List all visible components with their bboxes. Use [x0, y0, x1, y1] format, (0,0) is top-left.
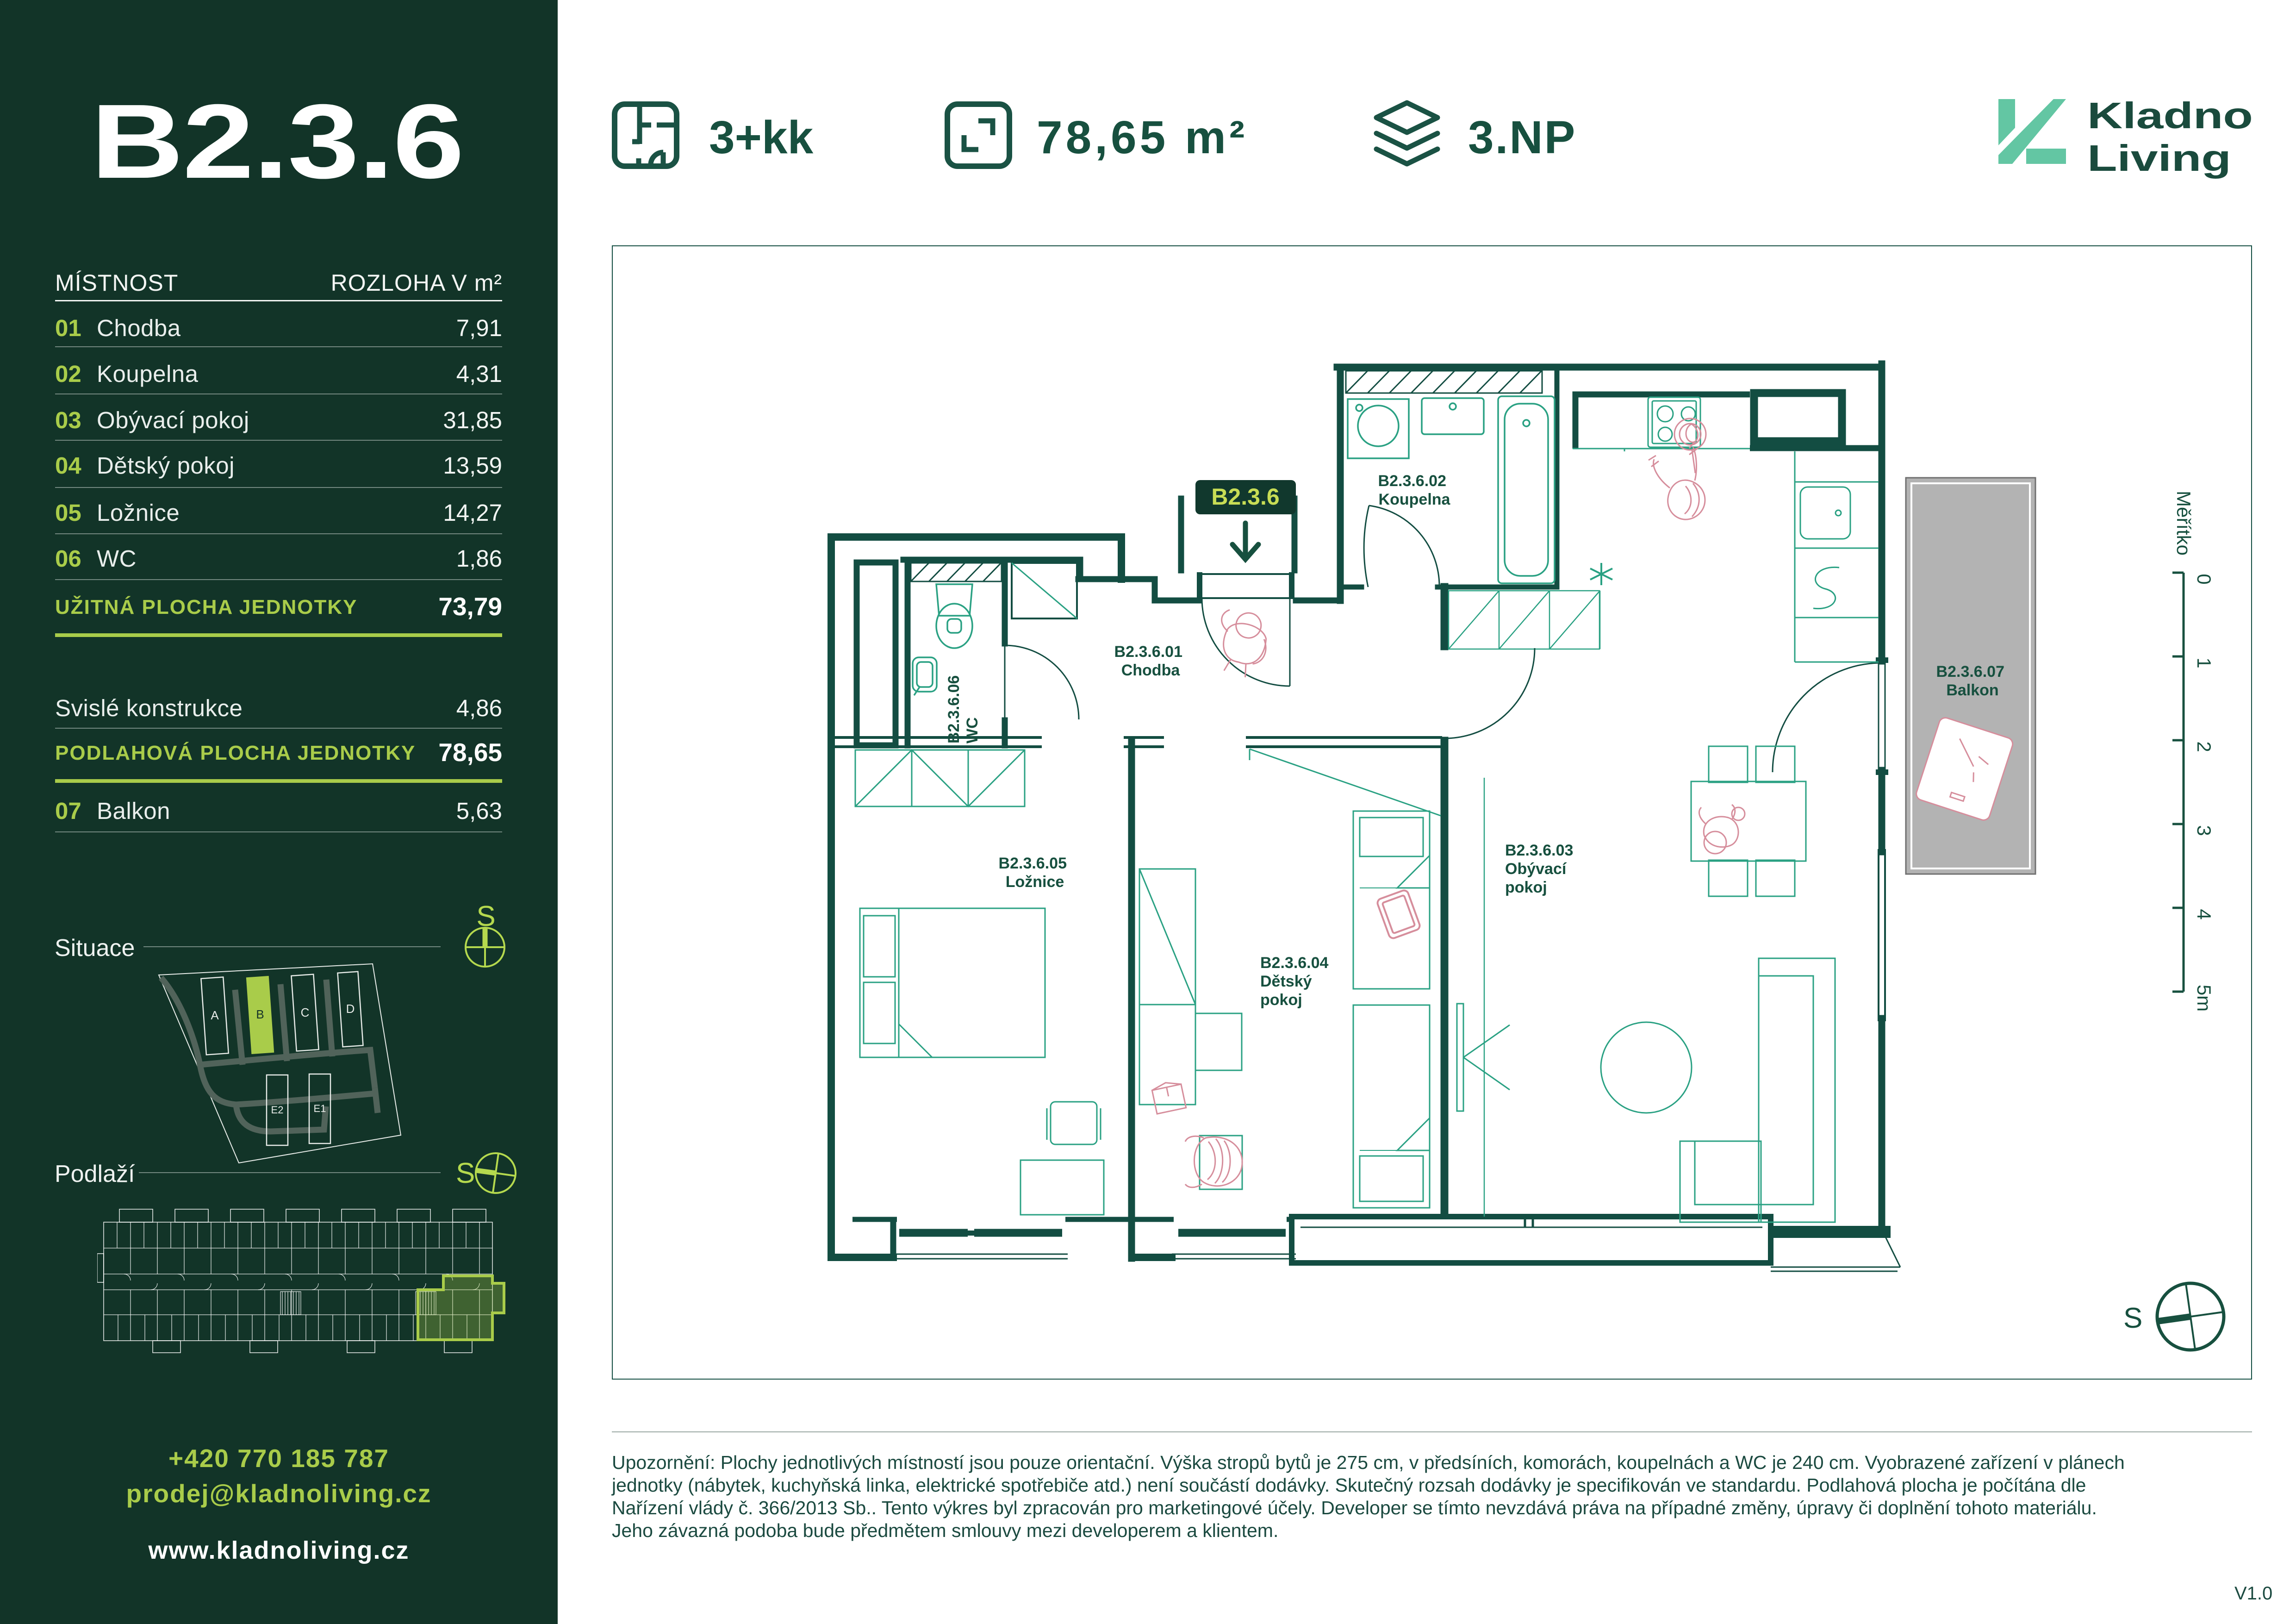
- svg-text:Měřítko: Měřítko: [2173, 491, 2195, 556]
- svg-text:1: 1: [2193, 657, 2215, 668]
- svg-text:B: B: [256, 1007, 264, 1021]
- svg-text:B2.3.6.03 Obývací pokoj: B2.3.6.03 Obývací pokoj: [1505, 842, 1578, 896]
- svg-text:D: D: [346, 1002, 355, 1016]
- svg-text:S: S: [456, 1157, 475, 1189]
- svg-text:B2.3.6.06: B2.3.6.06: [945, 675, 963, 743]
- svg-text:B2.3.6.01 Chodba: B2.3.6.01 Chodba: [1114, 643, 1187, 679]
- svg-text:5m: 5m: [2193, 985, 2215, 1012]
- svg-text:A: A: [211, 1008, 219, 1022]
- svg-text:S: S: [2123, 1302, 2142, 1334]
- svg-text:B2.3.6: B2.3.6: [1211, 484, 1279, 510]
- svg-text:C: C: [301, 1006, 310, 1019]
- svg-text:B2.3.6.05 Ložnice: B2.3.6.05 Ložnice: [999, 855, 1071, 891]
- svg-text:2: 2: [2193, 741, 2215, 752]
- svg-text:WC: WC: [964, 717, 981, 743]
- svg-text:4: 4: [2193, 909, 2215, 919]
- svg-text:0: 0: [2193, 574, 2215, 584]
- svg-text:E1: E1: [314, 1103, 326, 1114]
- svg-text:E2: E2: [271, 1104, 284, 1116]
- svg-text:B2.3.6.04 Dětský pokoj: B2.3.6.04 Dětský pokoj: [1260, 954, 1333, 1009]
- svg-text:3: 3: [2193, 825, 2215, 836]
- svg-text:B2.3.6.02 Koupelna: B2.3.6.02 Koupelna: [1378, 472, 1451, 508]
